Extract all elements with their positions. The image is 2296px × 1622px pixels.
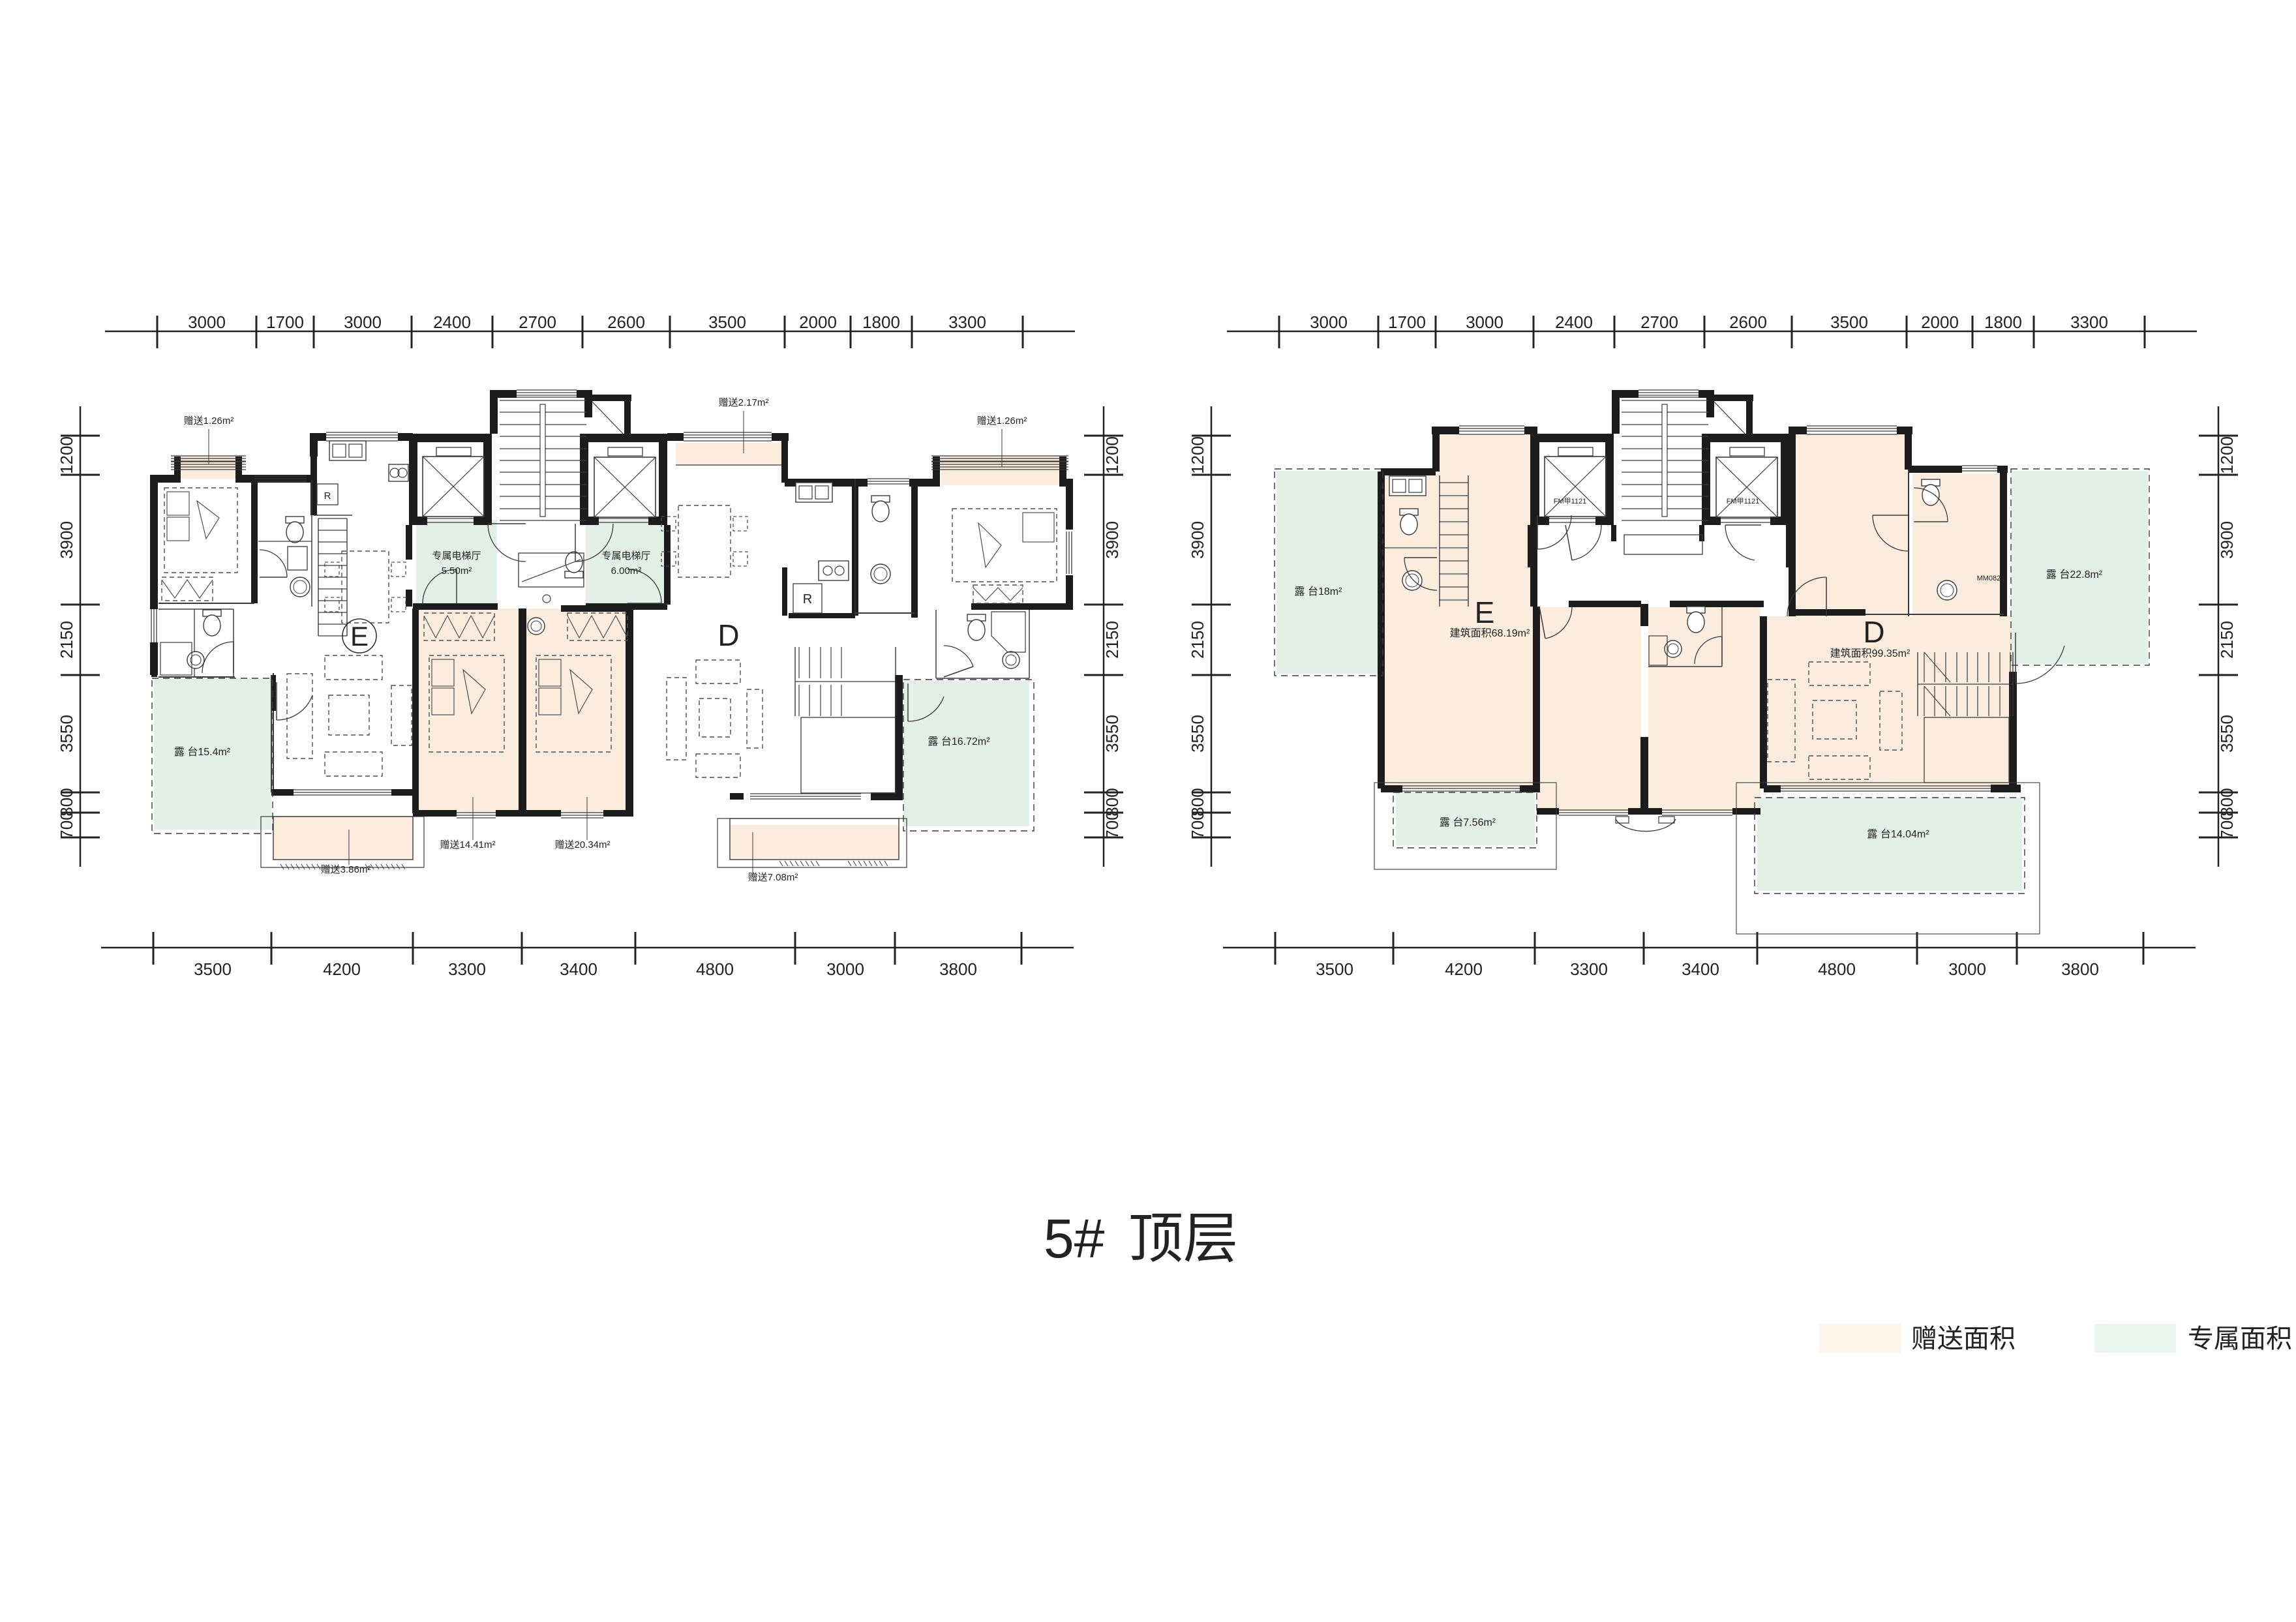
svg-text:赠送2.17m²: 赠送2.17m² [719,397,769,408]
svg-text:2600: 2600 [1729,312,1767,332]
svg-text:2700: 2700 [519,312,556,332]
svg-text:MM0821: MM0821 [1977,575,2005,582]
svg-text:5.50m²: 5.50m² [442,565,472,577]
svg-text:赠送面积: 赠送面积 [1911,1325,2016,1353]
svg-text:R: R [803,592,812,607]
svg-text:露 台7.56m²: 露 台7.56m² [1440,817,1496,828]
svg-text:FM甲1121: FM甲1121 [1554,498,1587,505]
svg-text:3000: 3000 [826,959,864,979]
svg-text:3000: 3000 [188,312,226,332]
svg-text:露 台15.4m²: 露 台15.4m² [174,746,231,758]
svg-text:3900: 3900 [1102,521,1122,559]
svg-text:2700: 2700 [1640,312,1678,332]
svg-text:赠送7.08m²: 赠送7.08m² [748,872,798,883]
svg-text:3500: 3500 [1316,959,1353,979]
svg-text:专属电梯厅: 专属电梯厅 [432,550,481,562]
svg-text:3000: 3000 [1948,959,1986,979]
svg-text:2000: 2000 [799,312,837,332]
svg-text:3400: 3400 [560,959,597,979]
svg-text:建筑面积99.35m²: 建筑面积99.35m² [1830,648,1911,659]
svg-text:1200: 1200 [57,436,76,474]
svg-text:露 台16.72m²: 露 台16.72m² [928,736,990,747]
svg-text:2150: 2150 [1188,621,1207,659]
svg-text:3900: 3900 [2217,521,2237,559]
svg-text:3550: 3550 [2217,715,2237,753]
svg-text:建筑面积68.19m²: 建筑面积68.19m² [1450,627,1530,639]
svg-text:2600: 2600 [607,312,645,332]
svg-text:3000: 3000 [1310,312,1348,332]
svg-text:4200: 4200 [1445,959,1483,979]
svg-text:3550: 3550 [1188,715,1207,753]
svg-text:1800: 1800 [862,312,900,332]
svg-text:E: E [350,621,369,652]
svg-text:3000: 3000 [344,312,382,332]
svg-text:3300: 3300 [1570,959,1608,979]
svg-text:3550: 3550 [1102,715,1122,753]
svg-text:700: 700 [1102,811,1122,839]
svg-text:700: 700 [57,811,76,839]
svg-text:赠送1.26m²: 赠送1.26m² [184,415,234,427]
svg-text:1700: 1700 [266,312,304,332]
svg-text:3300: 3300 [448,959,486,979]
svg-text:2400: 2400 [433,312,471,332]
svg-text:赠送14.41m²: 赠送14.41m² [440,839,495,850]
svg-text:4800: 4800 [696,959,734,979]
svg-text:FM甲1121: FM甲1121 [1727,498,1760,505]
svg-text:3000: 3000 [1466,312,1503,332]
svg-text:5#: 5# [1044,1208,1105,1269]
svg-text:2150: 2150 [1102,621,1122,659]
svg-text:3500: 3500 [708,312,746,332]
svg-text:3300: 3300 [2070,312,2108,332]
svg-text:3800: 3800 [2061,959,2099,979]
svg-text:专属面积: 专属面积 [2188,1325,2292,1353]
svg-text:露 台14.04m²: 露 台14.04m² [1867,828,1929,840]
svg-text:2000: 2000 [1921,312,1959,332]
svg-text:E: E [1475,595,1495,629]
svg-text:露 台22.8m²: 露 台22.8m² [2046,569,2103,580]
svg-text:1200: 1200 [1102,436,1122,474]
svg-text:3300: 3300 [948,312,986,332]
svg-text:专属电梯厅: 专属电梯厅 [601,550,650,562]
svg-text:顶层: 顶层 [1128,1208,1238,1269]
svg-text:3500: 3500 [194,959,232,979]
svg-text:赠送3.86m²: 赠送3.86m² [321,864,371,875]
svg-text:赠送20.34m²: 赠送20.34m² [554,839,610,850]
svg-text:3900: 3900 [57,521,76,559]
svg-text:1200: 1200 [1188,436,1207,474]
svg-text:1800: 1800 [1984,312,2022,332]
svg-text:1200: 1200 [2217,436,2237,474]
svg-text:3550: 3550 [57,715,76,753]
svg-text:露 台18m²: 露 台18m² [1295,586,1343,597]
svg-text:D: D [717,618,739,652]
svg-text:4800: 4800 [1818,959,1856,979]
svg-text:2150: 2150 [57,621,76,659]
svg-text:4200: 4200 [323,959,361,979]
svg-text:R: R [324,490,331,502]
svg-text:700: 700 [2217,811,2237,839]
svg-text:3500: 3500 [1830,312,1868,332]
svg-text:700: 700 [1188,811,1207,839]
svg-text:2400: 2400 [1555,312,1593,332]
svg-text:D: D [1863,615,1884,649]
svg-text:3900: 3900 [1188,521,1207,559]
svg-text:赠送1.26m²: 赠送1.26m² [977,415,1027,427]
svg-text:6.00m²: 6.00m² [611,565,642,577]
svg-text:3800: 3800 [939,959,977,979]
svg-text:1700: 1700 [1388,312,1426,332]
svg-text:3400: 3400 [1682,959,1719,979]
svg-text:2150: 2150 [2217,621,2237,659]
